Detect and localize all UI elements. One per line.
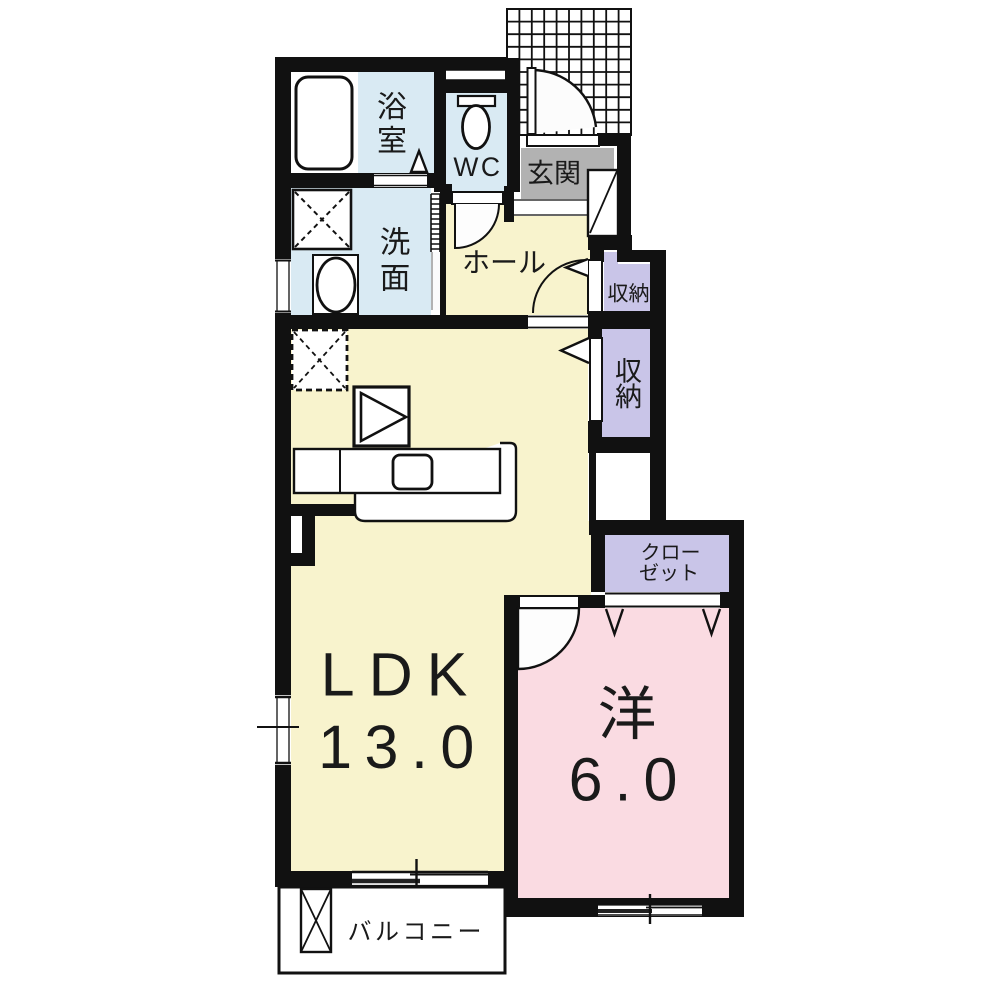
svg-text:LDK: LDK xyxy=(321,641,482,709)
svg-text:6.0: 6.0 xyxy=(569,746,690,814)
svg-text:WC: WC xyxy=(453,152,502,182)
svg-text:13.0: 13.0 xyxy=(318,713,487,781)
